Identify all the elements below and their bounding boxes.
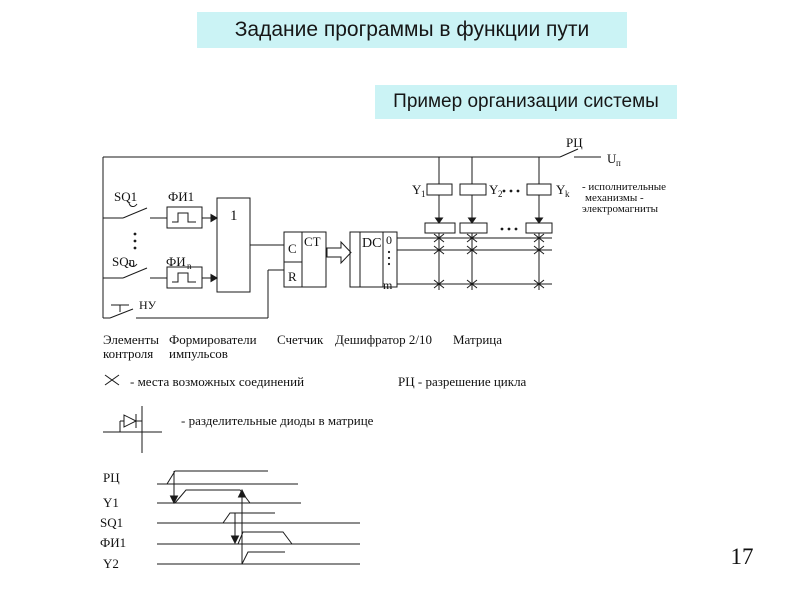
actuator-note-line3: электромагниты	[582, 203, 659, 215]
matrix-column-k	[526, 157, 552, 290]
decoder-out-top-label: 0	[386, 233, 392, 247]
caption-elements-line1: Элементы	[103, 332, 159, 347]
yk-coil-sub: k	[565, 189, 570, 199]
legend-connections-text: - места возможных соединений	[130, 374, 304, 389]
timing-arrow-sq1-to-fi1	[232, 513, 239, 543]
rc-switch-icon	[560, 149, 601, 157]
decoder-title: DC	[362, 236, 381, 251]
fin-label: ФИ	[166, 254, 186, 269]
fin-label-sub: n	[187, 261, 192, 271]
fi1-pulse-former	[167, 207, 202, 228]
y1-coil-sub: 1	[421, 189, 426, 199]
legend-cross-icon	[105, 375, 119, 385]
matrix-column-1	[425, 157, 455, 290]
matrix-column-2	[460, 157, 487, 290]
counter-c-label: C	[288, 241, 297, 256]
coil-row-ellipsis-top	[503, 190, 520, 193]
counter-to-decoder-arrow-icon	[327, 242, 351, 263]
timing-arrow-fi1-to-y1	[239, 490, 246, 564]
timing-sq1-signal	[223, 513, 275, 523]
legend-rc-text: РЦ - разрешение цикла	[398, 374, 527, 389]
rc-switch-label: РЦ	[566, 135, 583, 150]
page-number: 17	[722, 544, 762, 570]
connection-cross-icons	[434, 234, 544, 288]
caption-elements-line2: контроля	[103, 346, 153, 361]
nu-switch-icon	[103, 270, 284, 318]
or-block-label: 1	[230, 208, 238, 224]
legend-diode-icon	[103, 406, 162, 453]
timing-label-rc: РЦ	[103, 470, 120, 485]
caption-matrix: Матрица	[453, 332, 502, 347]
matrix-row-wires	[397, 238, 552, 284]
branch-ellipsis	[134, 233, 137, 250]
counter-r-label: R	[288, 269, 297, 284]
pulse-icon	[172, 213, 196, 222]
y2-coil-sub: 2	[498, 189, 503, 199]
coil-row-ellipsis-bottom	[501, 228, 518, 231]
caption-formers-line2: импульсов	[169, 346, 228, 361]
caption-formers-line1: Формирователи	[169, 332, 257, 347]
sq1-switch-icon	[103, 203, 167, 218]
pulse-icon	[172, 273, 196, 282]
timing-y2-signal	[242, 552, 285, 564]
timing-fi1-signal	[238, 532, 292, 544]
fi1-label: ФИ1	[168, 189, 194, 204]
sqn-label: SQn	[112, 254, 136, 269]
supply-voltage-sub: п	[616, 158, 621, 168]
caption-counter: Счетчик	[277, 332, 324, 347]
timing-label-sq1: SQ1	[100, 515, 123, 530]
decoder-out-bottom-label: m	[383, 278, 393, 292]
caption-decoder: Дешифратор 2/10	[335, 332, 432, 347]
sq1-label: SQ1	[114, 189, 137, 204]
fi1-to-or-arrow	[202, 215, 217, 222]
circuit-diagram: РЦ U п SQ1 ФИ1 SQn ФИ n	[0, 0, 800, 600]
timing-label-y1: Y1	[103, 495, 119, 510]
decoder-out-ellipsis	[388, 251, 390, 265]
fin-pulse-former	[167, 267, 202, 288]
timing-rc-signal	[167, 471, 268, 484]
legend-diode-text: - разделительные диоды в матрице	[181, 413, 374, 428]
timing-diagram	[157, 471, 360, 564]
counter-title: CT	[304, 234, 321, 249]
timing-label-fi1: ФИ1	[100, 535, 126, 550]
fin-to-or-arrow	[202, 275, 217, 282]
nu-label: НУ	[139, 298, 157, 312]
timing-label-y2: Y2	[103, 556, 119, 571]
